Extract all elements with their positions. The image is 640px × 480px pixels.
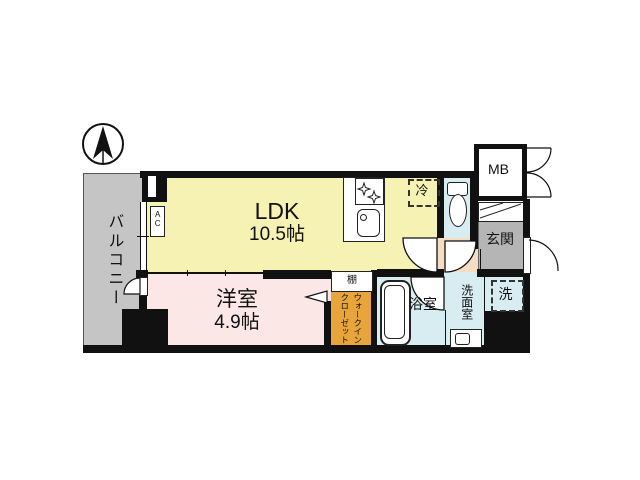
balcony-door-leaf: [139, 277, 148, 296]
wall-corner-notch: [148, 176, 156, 197]
meter-box-label: MB: [477, 160, 520, 178]
western-room-label: 洋室: [167, 288, 307, 312]
bathroom-label: 浴室: [409, 296, 437, 312]
walk-in-closet-area: [331, 290, 371, 345]
ldk-label: LDK: [207, 198, 347, 224]
wic-label-col2: クローゼット: [339, 293, 349, 344]
partition-tick-1: [187, 270, 188, 276]
floor-plan: バルコニー LDK 10.5帖 洋室 4.9帖 ウォークイン クローゼット 棚 …: [0, 0, 640, 480]
western-room-size-label: 4.9帖: [167, 312, 307, 334]
kitchen-stove: [355, 178, 384, 205]
ac-label: AC: [153, 210, 162, 228]
entrance-label: 玄関: [486, 231, 514, 247]
wall-bath-washroom: [445, 310, 446, 345]
ldk-size-text: 10.5帖: [249, 224, 305, 246]
wall-block-bottom-right: [484, 311, 523, 351]
balcony-label: バルコニー: [104, 213, 122, 308]
refrigerator-label-text: 冷: [415, 184, 428, 199]
washroom-label: 洗面室: [459, 284, 473, 320]
refrigerator-label: 冷: [408, 180, 436, 202]
window-ldk-balcony: [140, 202, 147, 273]
wic-label-col1: ウォークイン: [352, 293, 362, 344]
wall-pillar-bottom-left: [122, 309, 168, 346]
meter-box-door-arcs: [527, 148, 551, 197]
wall-washroom-laundry: [484, 277, 485, 311]
partition-ldk-western: [146, 272, 264, 274]
ldk-label-text: LDK: [255, 198, 300, 224]
kitchen-faucet: [360, 214, 367, 221]
wall-right-lower: [523, 271, 530, 349]
ldk-size-label: 10.5帖: [207, 224, 347, 246]
shoe-cabinet-area: [478, 202, 524, 222]
wash-basin-inner: [455, 333, 470, 345]
entrance-step-line: [480, 249, 481, 272]
toilet-bowl: [449, 194, 467, 227]
kitchen-sink: [357, 209, 380, 237]
entrance-door-arc: [529, 240, 558, 271]
shelf-label: 棚: [347, 275, 357, 287]
partition-tick-2: [225, 270, 226, 276]
meter-box-label-text: MB: [488, 161, 509, 177]
wall-toilet-right: [470, 171, 478, 249]
wall-bath-top: [377, 269, 444, 277]
bathtub-inner: [384, 285, 405, 339]
wall-wic-left: [324, 301, 331, 345]
entrance-door-leaf: [523, 237, 531, 274]
wall-top: [140, 171, 477, 178]
laundry-label-text: 洗: [499, 286, 513, 302]
laundry-label: 洗: [491, 281, 520, 307]
wall-ldk-western-thick: [263, 270, 331, 279]
western-room-size-text: 4.9帖: [214, 312, 259, 334]
north-compass-icon: [83, 124, 123, 164]
window-tick: [137, 236, 149, 237]
wall-right-upper: [523, 199, 530, 241]
western-room-label-text: 洋室: [216, 288, 258, 312]
